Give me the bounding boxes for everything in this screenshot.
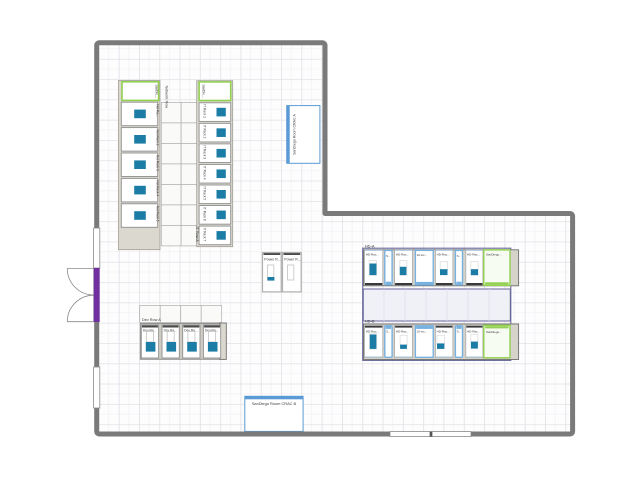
svg-text:Net Rack 2: Net Rack 2 [156,130,160,146]
svg-text:SanDie...: SanDie... [202,85,206,98]
svg-text:HD-Rac...: HD-Rac... [467,253,480,257]
svg-text:Power R...: Power R... [264,257,280,261]
svg-text:Dev Ra...: Dev Ra... [164,329,177,333]
svg-text:Network Row: Network Row [165,86,169,109]
svg-text:SanDiego Room CRAC B: SanDiego Room CRAC B [252,401,297,406]
svg-text:HD-A: HD-A [365,243,375,248]
svg-text:Dev Ra...: Dev Ra... [143,329,156,333]
svg-text:Dev Ra...: Dev Ra... [205,329,218,333]
svg-text:IT Rack 7: IT Rack 7 [202,228,206,242]
svg-text:SanDiego...: SanDiego... [486,253,502,257]
svg-text:IT Rack 1: IT Rack 1 [202,104,206,118]
svg-text:HD-Rac...: HD-Rac... [437,253,450,257]
svg-text:SanDiego...: SanDiego... [486,330,502,334]
svg-text:IT Rack 2: IT Rack 2 [202,125,206,139]
svg-text:HD-Rac...: HD-Rac... [366,253,379,257]
svg-text:Net Ra...: Net Ra... [156,104,160,117]
svg-text:IT Rack 4: IT Rack 4 [202,166,206,180]
svg-text:SanDiego Room CRAC A: SanDiego Room CRAC A [293,114,297,155]
svg-text:Net Rack 5: Net Rack 5 [156,206,160,222]
svg-text:IT Rack 5: IT Rack 5 [202,187,206,201]
svg-text:Power R...: Power R... [284,257,300,261]
svg-text:SanDie...: SanDie... [155,85,159,98]
svg-text:S...: S... [386,330,391,334]
svg-text:HD-Rac...: HD-Rac... [396,253,409,257]
svg-text:Dev Row A: Dev Row A [142,318,161,322]
svg-text:IT Rack 6: IT Rack 6 [202,207,206,221]
svg-text:IT Rack 3: IT Rack 3 [202,145,206,159]
svg-text:S...: S... [457,330,462,334]
svg-text:IT Row A: IT Row A [195,227,199,243]
svg-text:Net Rack 4: Net Rack 4 [156,180,160,196]
svg-text:HD-Rac...: HD-Rac... [467,330,480,334]
svg-text:HD-Rac...: HD-Rac... [396,330,409,334]
svg-text:10-inc...: 10-inc... [417,253,428,257]
svg-text:S...: S... [457,254,462,258]
svg-text:HD-B: HD-B [365,319,375,324]
svg-text:HD-Rac...: HD-Rac... [366,330,379,334]
svg-text:Dev Ra...: Dev Ra... [184,329,197,333]
svg-text:10-inc...: 10-inc... [417,330,428,334]
svg-text:Net Rack 3: Net Rack 3 [156,155,160,171]
svg-text:HD-Rac...: HD-Rac... [437,330,450,334]
svg-text:S...: S... [386,254,391,258]
